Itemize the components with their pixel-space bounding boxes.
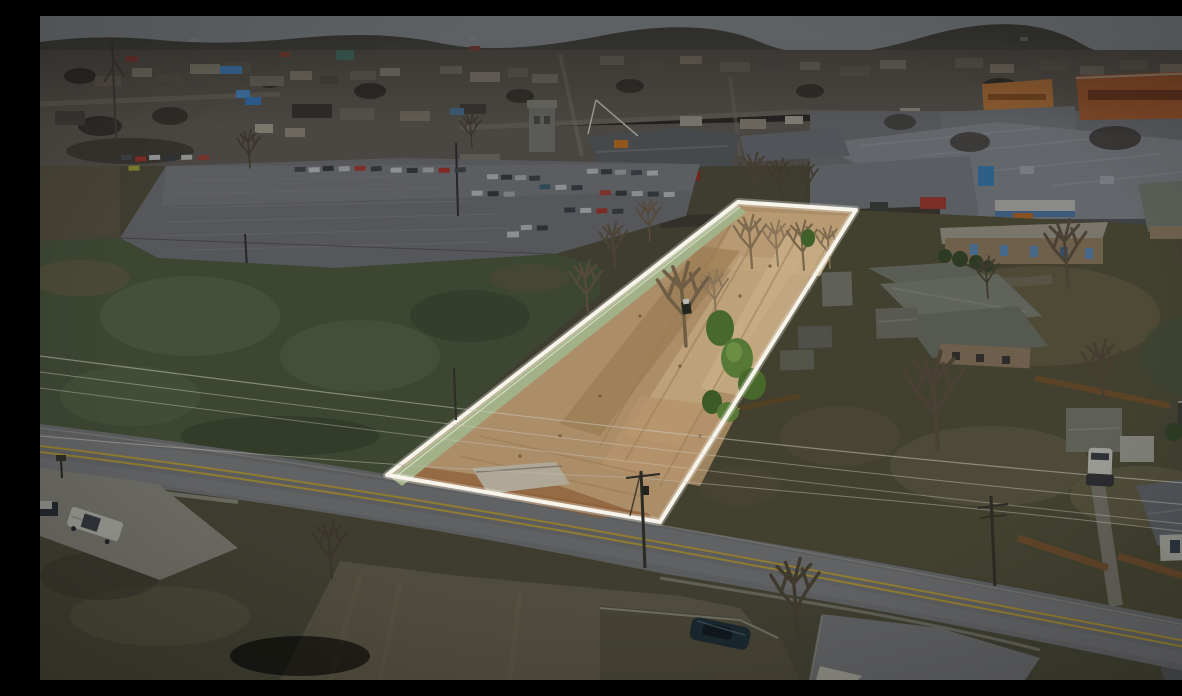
aerial-photo-canvas — [40, 16, 1182, 680]
vignette — [40, 16, 1182, 680]
aerial-photo — [40, 16, 1182, 680]
